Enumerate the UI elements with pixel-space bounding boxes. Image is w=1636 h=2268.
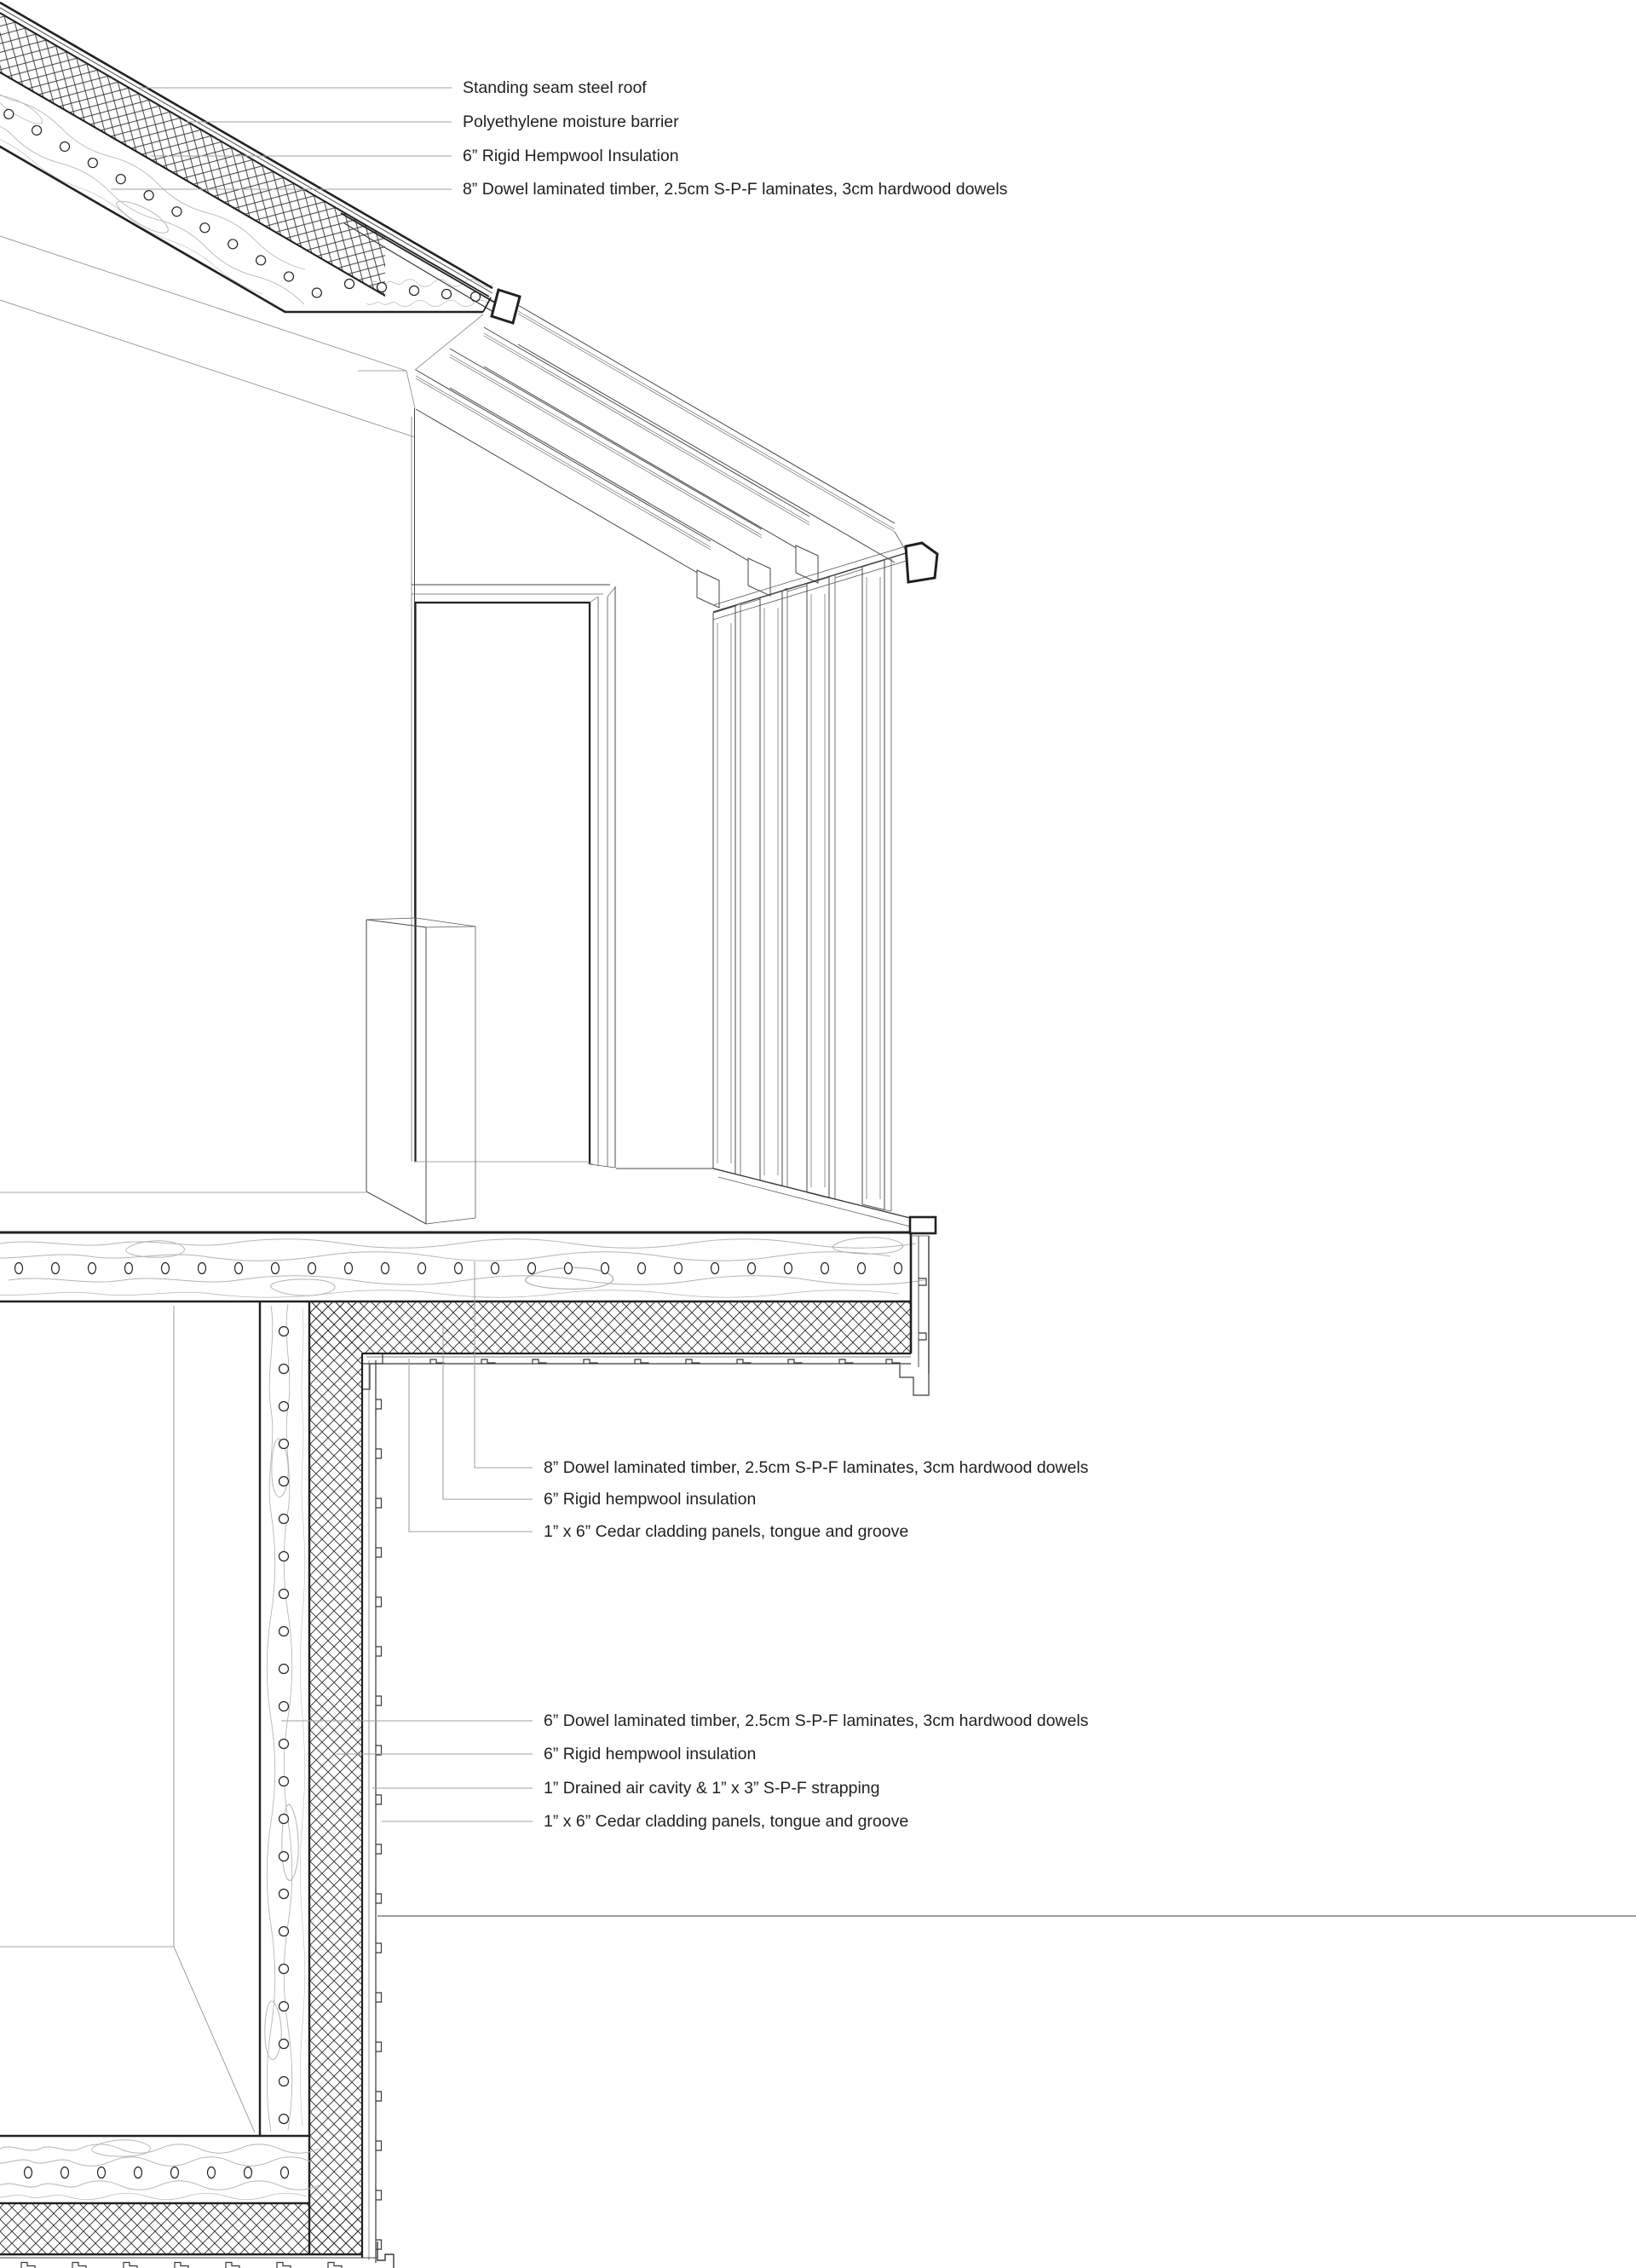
mid-floor-dowels (15, 1263, 902, 1274)
drawing-canvas (0, 0, 1636, 2268)
leader-floor-timber (475, 1261, 533, 1468)
callout-floor-cladding: 1” x 6” Cedar cladding panels, tongue an… (544, 1522, 908, 1541)
callout-roof-insulation: 6” Rigid Hempwool Insulation (463, 147, 679, 165)
callout-floor-timber: 8” Dowel laminated timber, 2.5cm S-P-F l… (544, 1458, 1088, 1477)
leader-floor-cladding (409, 1359, 533, 1532)
sill-end-cap (910, 1217, 936, 1233)
cladding-corner-trim (377, 2242, 394, 2268)
callout-wall-timber: 6” Dowel laminated timber, 2.5cm S-P-F l… (544, 1711, 1088, 1730)
clerestory-framing (412, 305, 937, 1233)
page: Standing seam steel roof Polyethylene mo… (0, 0, 1636, 2268)
plate-end-cap (906, 543, 937, 582)
callout-wall-cladding: 1” x 6” Cedar cladding panels, tongue an… (544, 1812, 908, 1831)
callout-standing-seam-roof: Standing seam steel roof (463, 78, 647, 97)
lower-room-lines (0, 1306, 255, 2132)
callout-floor-insulation: 6” Rigid hempwool insulation (544, 1490, 756, 1509)
clerestory-posts (713, 557, 891, 1211)
interior-column (366, 918, 475, 1224)
post-3 (807, 574, 835, 1199)
floor-surface-lines (0, 1162, 595, 1192)
post-1 (713, 603, 740, 1175)
callout-roof-timber: 8” Dowel laminated timber, 2.5cm S-P-F l… (463, 180, 1007, 199)
callout-wall-insulation: 6” Rigid hempwool insulation (544, 1745, 756, 1763)
post-4 (862, 557, 891, 1211)
insulation-hatch (0, 1301, 911, 2254)
door-frame-inner (416, 603, 590, 1164)
bottom-floor-dowels (25, 2167, 289, 2179)
callout-moisture-barrier: Polyethylene moisture barrier (463, 113, 679, 131)
fascia-end-cap (492, 290, 520, 323)
callout-air-cavity: 1” Drained air cavity & 1” x 3” S-P-F st… (544, 1779, 879, 1798)
roof-assembly (0, 0, 520, 443)
bottom-floor-grain (0, 2140, 319, 2200)
door-opening (412, 585, 615, 1168)
post-2 (760, 588, 787, 1187)
